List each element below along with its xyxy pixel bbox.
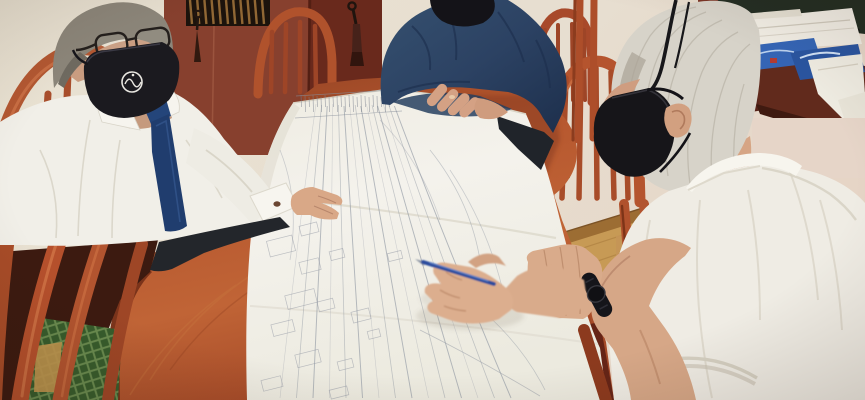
photo-vignette — [0, 0, 865, 400]
photo-meeting-blueprint — [0, 0, 865, 400]
